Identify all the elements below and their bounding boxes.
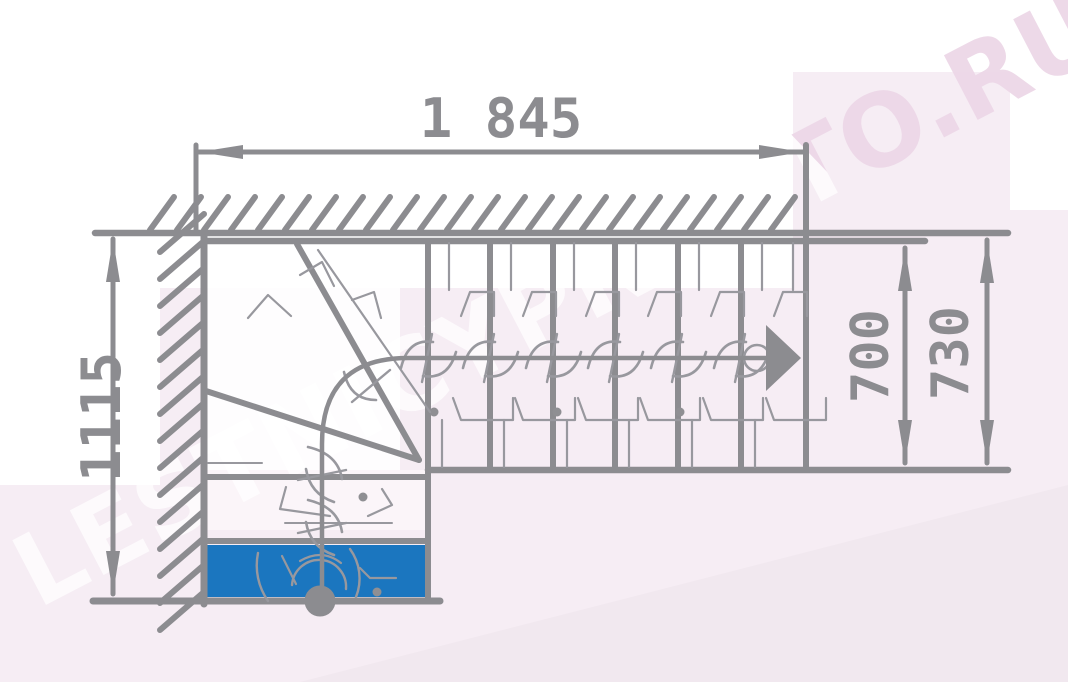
dim-label-top-width: 1 845 (420, 87, 583, 150)
stair-plan-drawing: LESTNICYPROSTO.RU LESTNICYPROSTO.RU 1 84… (0, 0, 1068, 682)
dim-label-flight-width-outer: 730 (921, 306, 981, 400)
dim-label-flight-width-inner: 700 (841, 309, 901, 403)
dim-label-left-height: 1115 (70, 352, 133, 482)
plan-svg: 1 845 1115 700 730 (0, 0, 1068, 682)
